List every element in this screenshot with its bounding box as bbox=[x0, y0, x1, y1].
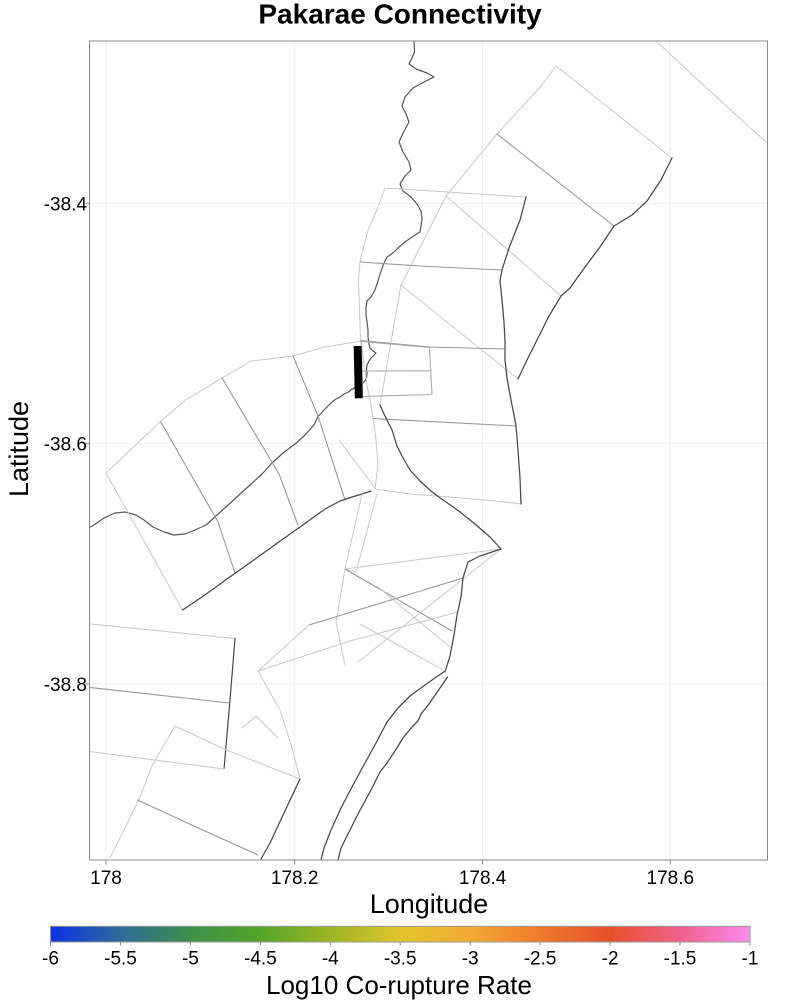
svg-text:-3.5: -3.5 bbox=[384, 949, 417, 970]
svg-text:Latitude: Latitude bbox=[4, 401, 34, 497]
svg-text:-38.4: -38.4 bbox=[44, 195, 88, 216]
svg-text:178.4: 178.4 bbox=[459, 868, 507, 889]
svg-text:Log10 Co-rupture Rate: Log10 Co-rupture Rate bbox=[266, 970, 532, 1000]
svg-text:178: 178 bbox=[90, 868, 122, 889]
svg-text:-38.6: -38.6 bbox=[44, 435, 87, 456]
svg-text:-5: -5 bbox=[182, 949, 199, 970]
svg-text:Pakarae Connectivity: Pakarae Connectivity bbox=[258, 0, 542, 30]
svg-text:-4.5: -4.5 bbox=[244, 949, 277, 970]
svg-text:-38.8: -38.8 bbox=[44, 675, 87, 696]
svg-text:-5.5: -5.5 bbox=[104, 949, 137, 970]
svg-text:-1: -1 bbox=[742, 949, 759, 970]
svg-text:Longitude: Longitude bbox=[370, 889, 489, 919]
svg-text:-4: -4 bbox=[322, 949, 339, 970]
svg-text:178.2: 178.2 bbox=[271, 868, 319, 889]
svg-text:-2: -2 bbox=[602, 949, 619, 970]
svg-text:-3: -3 bbox=[462, 949, 479, 970]
svg-text:178.6: 178.6 bbox=[647, 868, 695, 889]
svg-text:-1.5: -1.5 bbox=[664, 949, 697, 970]
svg-text:-2.5: -2.5 bbox=[524, 949, 557, 970]
svg-text:-6: -6 bbox=[42, 949, 59, 970]
